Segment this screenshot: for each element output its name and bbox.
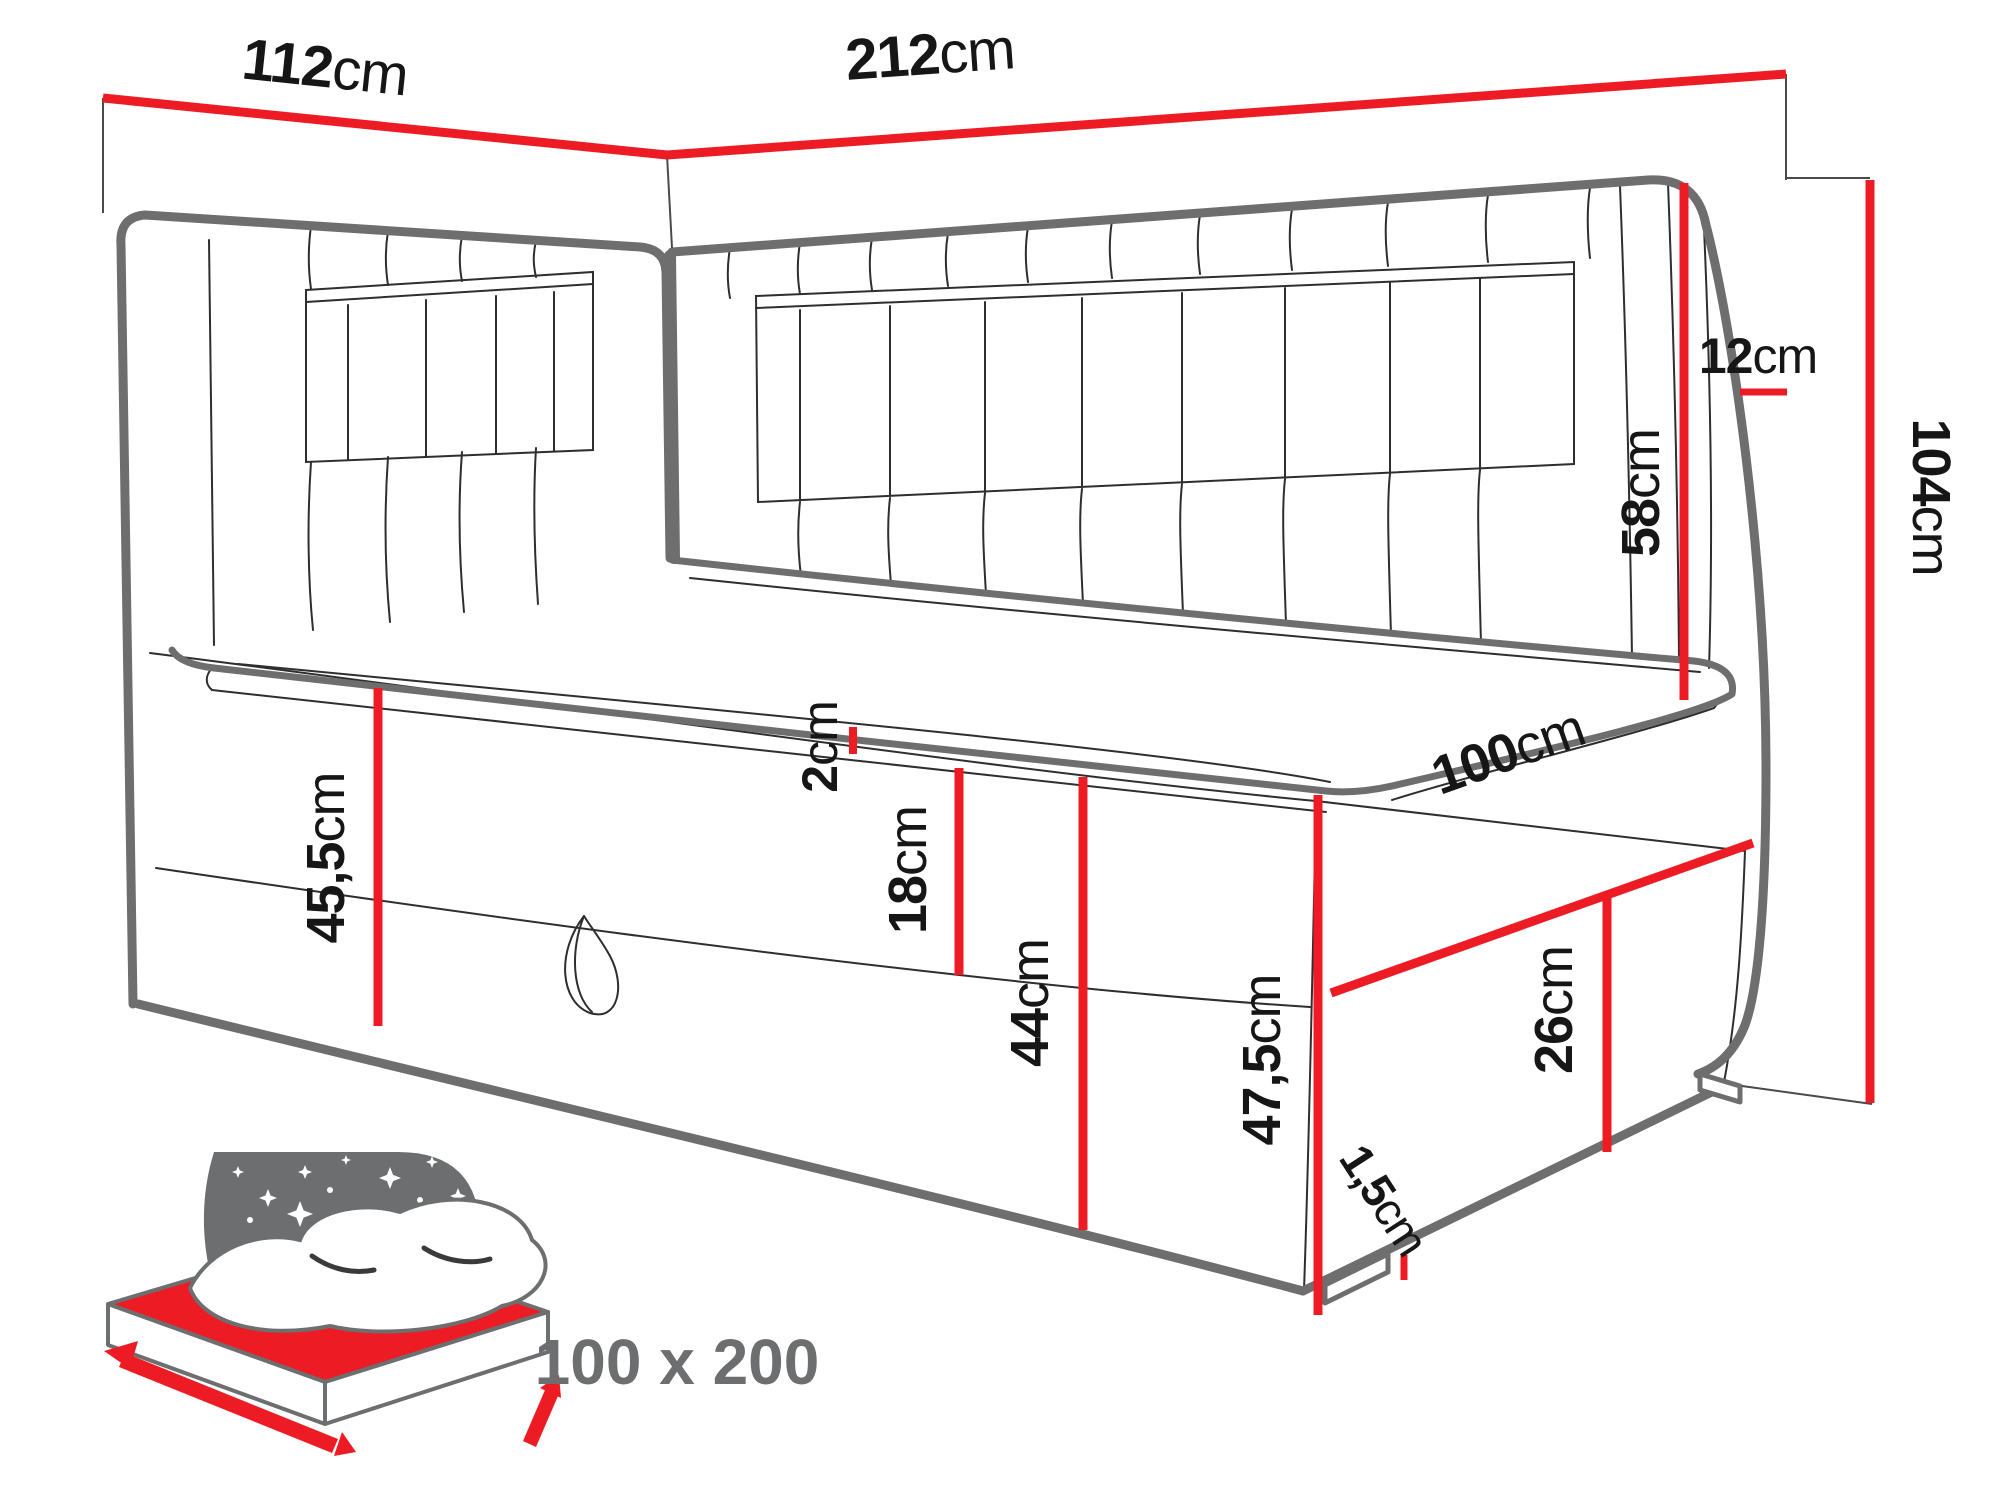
dim-12cm-label: 12cm xyxy=(1699,331,1817,381)
dim-line-212 xyxy=(667,74,1786,155)
sleeping-area-icon xyxy=(104,1152,561,1456)
dim-2cm-label: 2cm xyxy=(795,701,845,792)
dim-44cm-label: 44cm xyxy=(1003,939,1057,1067)
dim-47-5cm-label: 47,5cm xyxy=(1235,974,1289,1145)
dim-18cm-label: 18cm xyxy=(881,806,935,934)
headboard-junction xyxy=(670,256,674,558)
dim-26cm-label: 26cm xyxy=(1527,946,1581,1074)
dim-45-5cm-label: 45,5cm xyxy=(299,772,353,943)
mattress-size-label: 100 x 200 xyxy=(535,1330,820,1394)
dim-58cm-label: 58cm xyxy=(1614,429,1668,557)
bed-line-art xyxy=(0,0,2000,1500)
dimension-diagram: 112cm 212cm 12cm 58cm 104cm 2cm 18cm 44c… xyxy=(0,0,2000,1500)
dim-212cm-label: 212cm xyxy=(844,20,1017,90)
dim-104cm-label: 104cm xyxy=(1904,418,1958,575)
